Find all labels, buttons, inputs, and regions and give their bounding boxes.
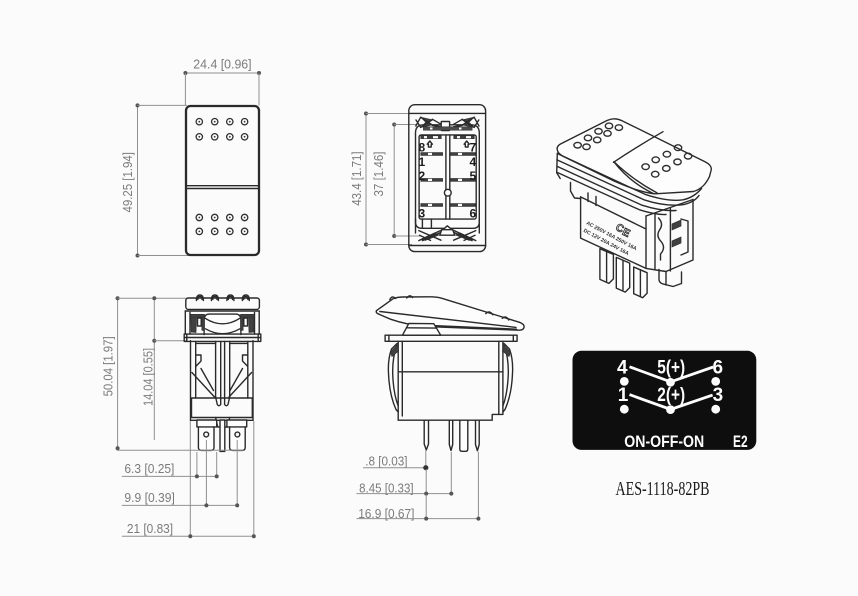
- svg-text:5(+): 5(+): [657, 357, 685, 378]
- svg-text:E2: E2: [733, 432, 748, 451]
- svg-text:2: 2: [419, 169, 426, 183]
- svg-text:14.04 [0.55]: 14.04 [0.55]: [141, 348, 156, 406]
- svg-text:24.4 [0.96]: 24.4 [0.96]: [193, 56, 251, 71]
- svg-text:8: 8: [419, 141, 426, 155]
- svg-text:1: 1: [419, 155, 426, 169]
- svg-text:2(+): 2(+): [657, 385, 685, 406]
- svg-text:.8 [0.03]: .8 [0.03]: [365, 454, 407, 469]
- svg-text:7: 7: [470, 141, 477, 155]
- svg-text:3: 3: [713, 385, 724, 406]
- svg-text:AES-1118-82PB: AES-1118-82PB: [616, 479, 710, 500]
- svg-text:8.45 [0.33]: 8.45 [0.33]: [359, 480, 414, 495]
- svg-text:1: 1: [618, 385, 629, 406]
- svg-text:4: 4: [617, 357, 628, 378]
- svg-text:6: 6: [470, 207, 477, 221]
- svg-text:50.04 [1.97]: 50.04 [1.97]: [101, 336, 116, 396]
- svg-text:4: 4: [470, 155, 477, 169]
- svg-text:6.3 [0.25]: 6.3 [0.25]: [124, 461, 174, 476]
- svg-text:3: 3: [419, 207, 426, 221]
- svg-text:ON-OFF-ON: ON-OFF-ON: [624, 432, 704, 451]
- svg-text:49.25 [1.94]: 49.25 [1.94]: [120, 152, 135, 213]
- svg-text:43.4 [1.71]: 43.4 [1.71]: [349, 151, 364, 205]
- svg-text:37 [1.46]: 37 [1.46]: [371, 152, 386, 197]
- svg-text:9.9 [0.39]: 9.9 [0.39]: [124, 490, 174, 505]
- svg-text:6: 6: [713, 357, 724, 378]
- svg-text:21 [0.83]: 21 [0.83]: [127, 521, 173, 536]
- svg-text:5: 5: [470, 169, 477, 183]
